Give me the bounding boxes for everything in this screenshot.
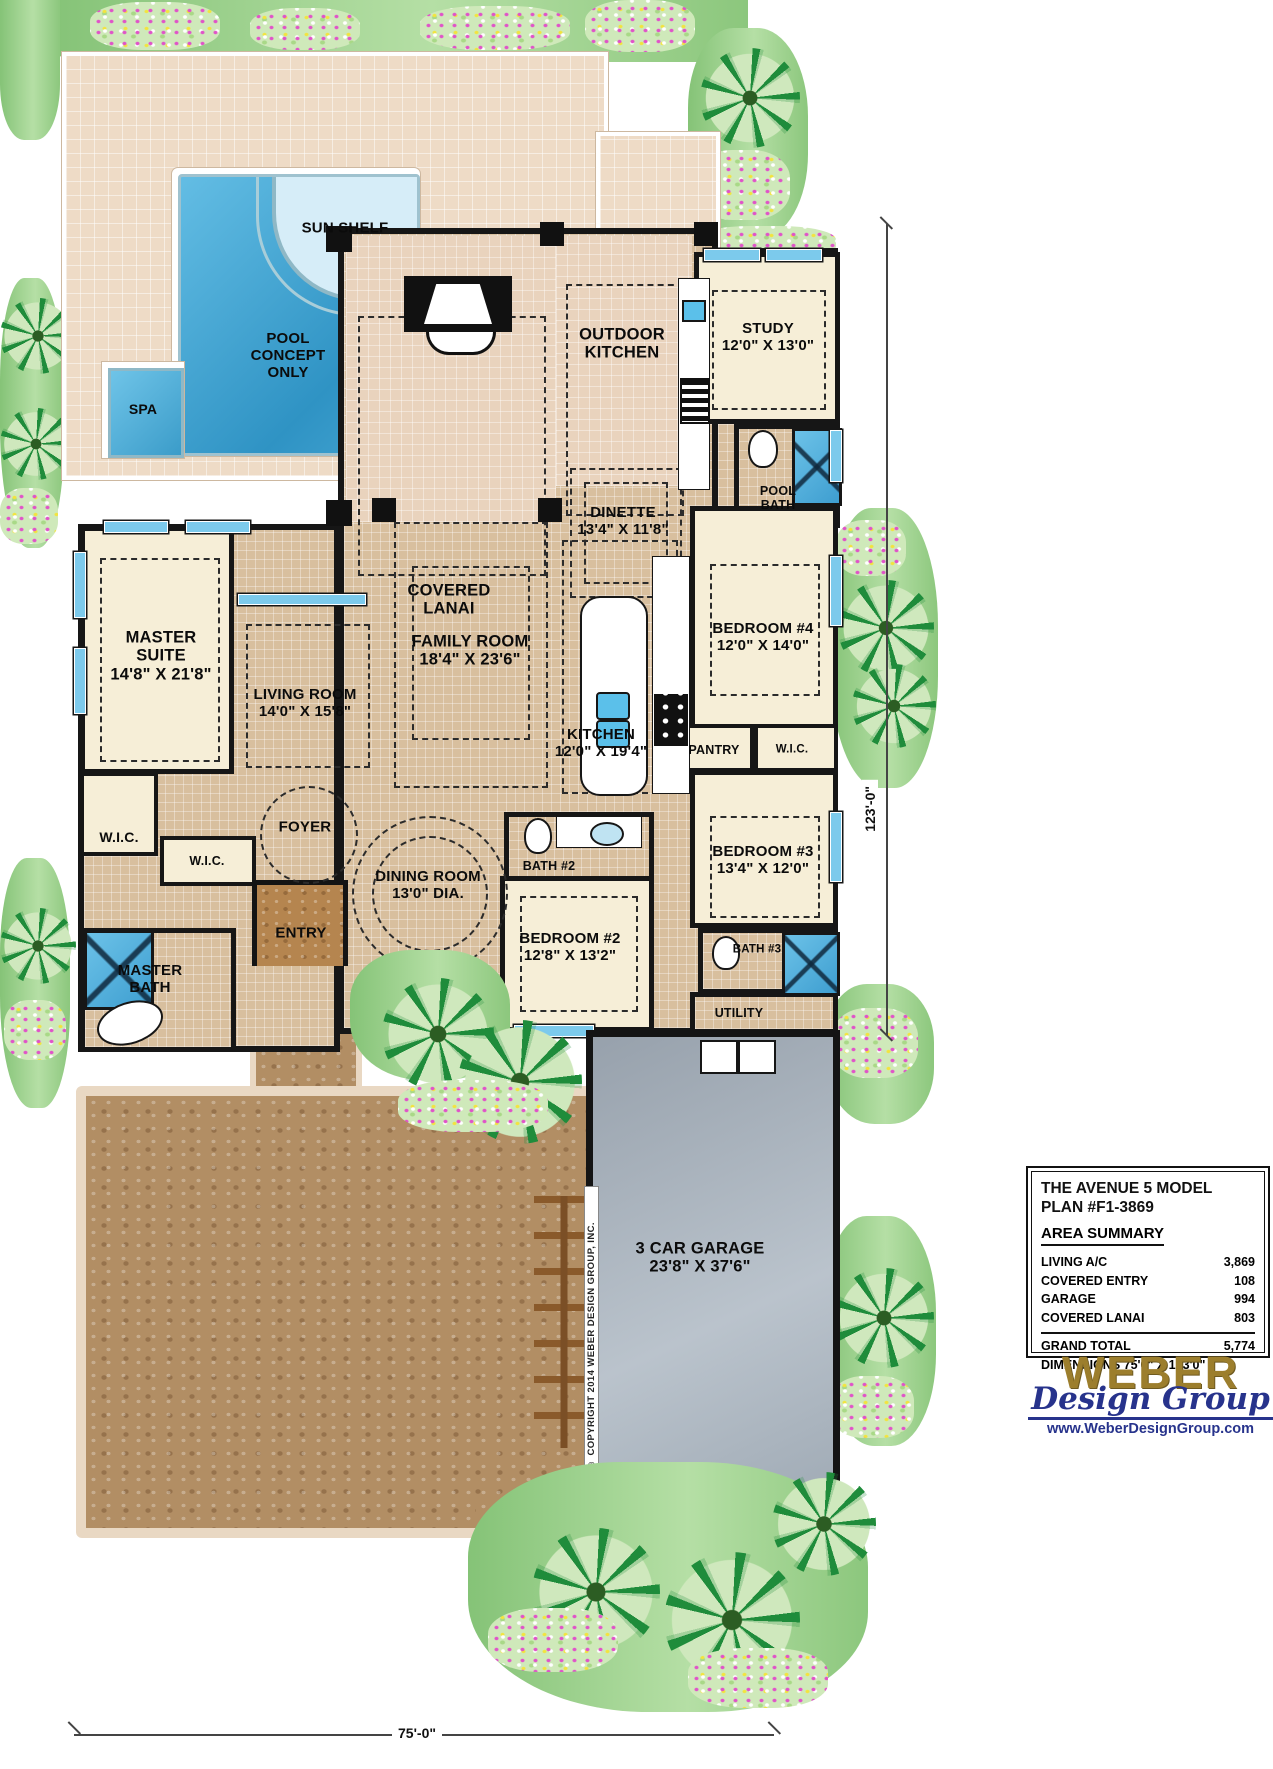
lanai-column	[540, 222, 564, 246]
flower-bed	[832, 1008, 918, 1078]
room-label-sun-shelf: SUN SHELF	[302, 221, 389, 238]
window	[830, 812, 842, 882]
title-block: THE AVENUE 5 MODEL PLAN #F1-3869 AREA SU…	[1026, 1166, 1270, 1358]
window	[104, 521, 168, 533]
flower-bed	[0, 488, 58, 544]
area-row-garage: GARAGE 994	[1041, 1290, 1255, 1309]
logo-url: www.WeberDesignGroup.com	[1028, 1421, 1273, 1437]
room-label-living-room: LIVING ROOM14'0" X 15'8"	[253, 687, 356, 721]
area-row-covered-entry: COVERED ENTRY 108	[1041, 1272, 1255, 1291]
flower-bed	[420, 6, 570, 50]
room-label-bedroom-2: BEDROOM #212'8" X 13'2"	[519, 931, 620, 965]
area-label: COVERED LANAI	[1041, 1309, 1144, 1328]
window	[74, 552, 86, 618]
plan-title-line2: PLAN #F1-3869	[1041, 1198, 1255, 1217]
flower-bed	[836, 520, 906, 576]
room-label-spa: SPA	[129, 402, 157, 418]
window	[830, 430, 842, 482]
area-value: 803	[1234, 1309, 1255, 1328]
driveway	[76, 1086, 600, 1538]
flower-bed	[830, 1376, 914, 1438]
room-label-pool-bath: POOL BATH	[749, 484, 807, 512]
window	[766, 249, 822, 261]
palm-tree	[0, 908, 76, 984]
utility-appliance	[738, 1040, 776, 1074]
lanai-column	[326, 500, 352, 526]
window	[186, 521, 250, 533]
dimension-label-width: 75'-0"	[392, 1725, 442, 1741]
landscape-left-top	[0, 0, 60, 140]
room-label-pool: POOL CONCEPT ONLY	[236, 331, 340, 381]
copyright-text: © COPYRIGHT 2014 WEBER DESIGN GROUP, INC…	[584, 1186, 599, 1474]
pool-bath-toilet	[748, 430, 778, 468]
flower-bed	[250, 8, 360, 50]
area-row-covered-lanai: COVERED LANAI 803	[1041, 1309, 1255, 1328]
title-block-inner: THE AVENUE 5 MODEL PLAN #F1-3869 AREA SU…	[1031, 1171, 1265, 1353]
room-label-wic-bedroom4: W.I.C.	[776, 744, 809, 757]
title-block-divider	[1041, 1332, 1255, 1334]
room-label-bedroom-3: BEDROOM #313'4" X 12'0"	[712, 844, 813, 878]
room-label-garage: 3 CAR GARAGE23'8" X 37'6"	[636, 1240, 765, 1277]
dimension-tick	[68, 1721, 81, 1734]
room-label-entry: ENTRY	[275, 926, 326, 943]
outdoor-kitchen-sink	[682, 300, 706, 322]
utility-appliance	[700, 1040, 738, 1074]
room-label-bedroom-4: BEDROOM #412'0" X 14'0"	[712, 621, 813, 655]
room-entry	[252, 880, 348, 966]
detail-covered-lanai	[358, 316, 546, 576]
room-label-foyer: FOYER	[279, 820, 332, 837]
room-label-dinette: DINETTE13'4" X 11'8"	[577, 505, 669, 539]
lanai-column	[694, 222, 718, 246]
dimension-tick	[768, 1721, 781, 1734]
room-label-dining-room: DINING ROOM13'0" DIA.	[375, 869, 481, 903]
area-label: COVERED ENTRY	[1041, 1272, 1148, 1291]
area-row-living: LIVING A/C 3,869	[1041, 1253, 1255, 1272]
room-label-wic-master-2: W.I.C.	[189, 854, 224, 868]
logo-subtitle: Design Group	[1028, 1381, 1273, 1420]
lanai-column	[372, 498, 396, 522]
room-label-outdoor-kitchen: OUTDOOR KITCHEN	[566, 326, 678, 363]
palm-tree	[772, 1472, 876, 1576]
dimension-label-height: 123'-0"	[862, 780, 878, 838]
palm-tree	[834, 1268, 934, 1368]
plan-title-line1: THE AVENUE 5 MODEL	[1041, 1179, 1255, 1198]
window	[830, 556, 842, 626]
room-utility	[690, 992, 838, 1034]
flower-bed	[398, 1080, 548, 1132]
window	[74, 648, 86, 714]
room-label-master-suite: MASTER SUITE14'8" X 21'8"	[105, 628, 217, 683]
room-label-bath-2: BATH #2	[522, 859, 576, 873]
room-label-bath-3: BATH #3	[730, 944, 784, 957]
area-value: 994	[1234, 1290, 1255, 1309]
floor-plan-canvas: © COPYRIGHT 2014 WEBER DESIGN GROUP, INC…	[0, 0, 1273, 1769]
lanai-column	[538, 498, 562, 522]
window	[238, 594, 366, 605]
area-summary-heading: AREA SUMMARY	[1041, 1225, 1164, 1246]
area-value: 3,869	[1224, 1253, 1255, 1272]
flower-bed	[688, 1648, 828, 1708]
flower-bed	[488, 1608, 618, 1672]
room-label-master-bath: MASTER BATH	[104, 963, 196, 997]
outdoor-kitchen-grill	[680, 378, 710, 424]
flower-bed	[4, 1000, 66, 1060]
flower-bed	[90, 2, 220, 50]
flower-bed	[585, 0, 695, 52]
room-label-family-room: FAMILY ROOM18'4" X 23'6"	[412, 633, 529, 670]
room-label-utility: UTILITY	[715, 1006, 764, 1020]
kitchen-counter	[652, 556, 690, 794]
area-label: GARAGE	[1041, 1290, 1096, 1309]
bath3-shower	[782, 932, 840, 996]
detail-outdoor-kitchen	[566, 284, 684, 516]
palm-tree	[852, 664, 936, 748]
weber-design-group-logo: WEBER Design Group www.WeberDesignGroup.…	[1028, 1352, 1273, 1437]
room-label-covered-lanai: COVERED LANAI	[393, 582, 505, 619]
bath2-toilet	[524, 818, 552, 854]
room-label-wic-master-1: W.I.C.	[99, 830, 138, 846]
kitchen-sink	[596, 692, 630, 720]
room-label-kitchen: KITCHEN12'0" X 19'4"	[555, 727, 647, 761]
room-label-pantry: PANTRY	[688, 743, 739, 757]
area-value: 108	[1234, 1272, 1255, 1291]
dimension-line-right	[886, 224, 888, 1036]
bath2-sink	[590, 822, 624, 846]
window	[704, 249, 760, 261]
area-label: LIVING A/C	[1041, 1253, 1107, 1272]
room-label-study: STUDY12'0" X 13'0"	[722, 321, 814, 355]
kitchen-range	[654, 694, 688, 746]
